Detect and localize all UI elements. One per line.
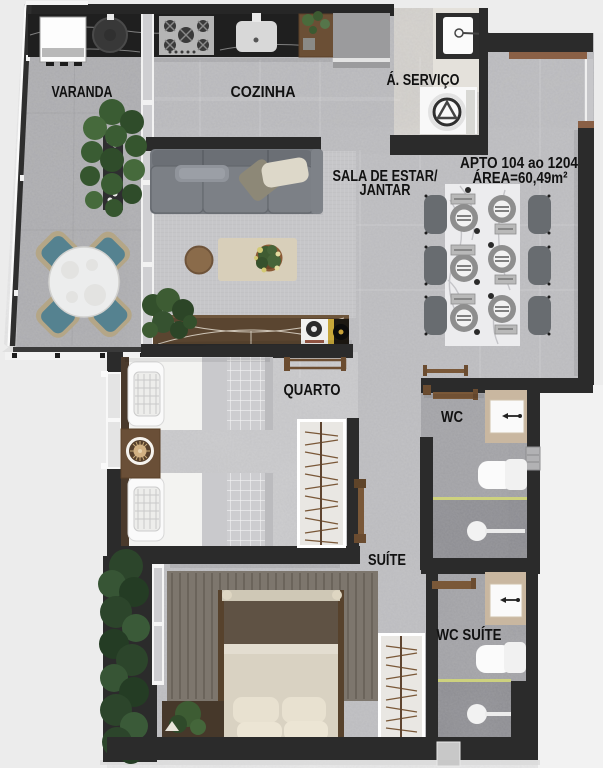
svg-text:JANTAR: JANTAR — [360, 182, 411, 199]
svg-text:SUÍTE: SUÍTE — [368, 550, 406, 569]
svg-text:VARANDA: VARANDA — [52, 84, 113, 101]
svg-text:ÁREA=60,49m²: ÁREA=60,49m² — [473, 168, 568, 187]
svg-text:COZINHA: COZINHA — [231, 84, 296, 101]
svg-text:QUARTO: QUARTO — [284, 382, 341, 399]
svg-text:WC: WC — [441, 409, 463, 426]
svg-text:WC SUÍTE: WC SUÍTE — [437, 625, 502, 644]
svg-text:Á. SERVIÇO: Á. SERVIÇO — [387, 70, 460, 89]
